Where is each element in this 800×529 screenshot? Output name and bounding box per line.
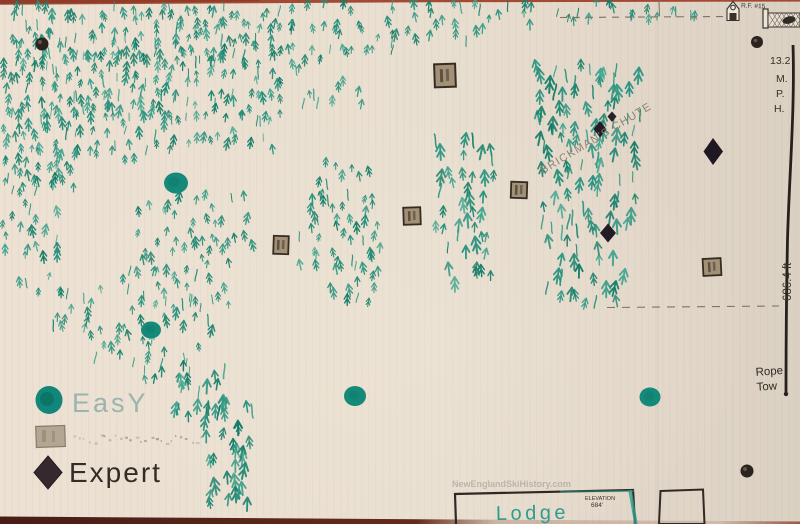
svg-text:Lodge: Lodge — [496, 502, 569, 524]
svg-text:Tow: Tow — [756, 380, 778, 393]
svg-text:EasY: EasY — [72, 388, 149, 418]
svg-text:Rope: Rope — [755, 365, 783, 379]
svg-text:Expert: Expert — [69, 457, 162, 488]
svg-text:13.2: 13.2 — [770, 55, 791, 67]
svg-text:686.4 ft: 686.4 ft — [782, 262, 794, 301]
svg-text:R.F. #15: R.F. #15 — [741, 3, 766, 11]
svg-text:NewEnglandSkiHistory.com: NewEnglandSkiHistory.com — [452, 479, 571, 489]
svg-text:684': 684' — [591, 502, 603, 509]
svg-text:H.: H. — [774, 103, 785, 115]
svg-text:M.: M. — [776, 73, 788, 85]
svg-text:P.: P. — [776, 88, 785, 100]
